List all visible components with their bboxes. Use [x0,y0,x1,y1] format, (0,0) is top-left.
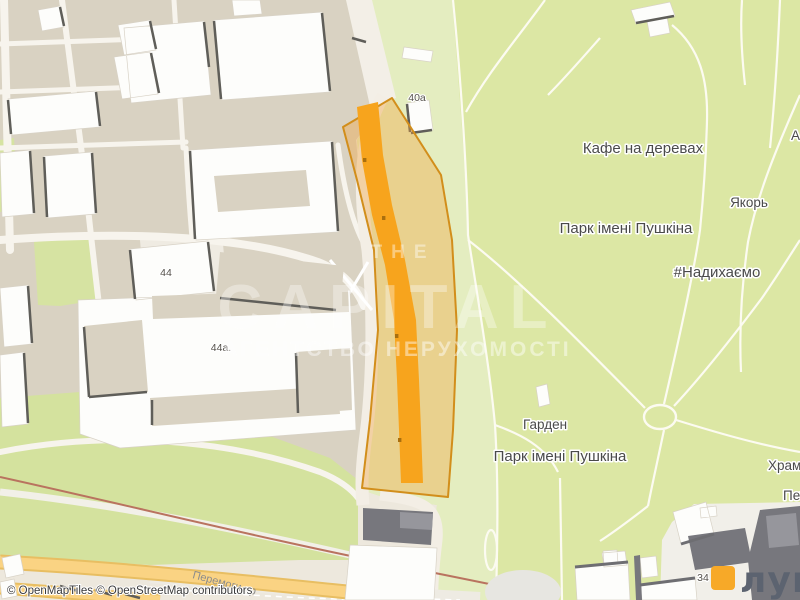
watermark-capital: CAPITAL [217,273,558,342]
label-a-cut: А [791,128,800,143]
label-khram: Храм п [768,458,800,473]
label-yakir: Якорь [730,195,768,210]
label-park-south: Парк імені Пушкіна [494,448,627,465]
label-cafe: Кафе на деревах [583,140,704,157]
label-garden: Гарден [523,417,567,432]
watermark-subtitle: АГЕНТСТВО НЕРУХОМОСТІ [222,338,571,361]
map-viewport[interactable]: Кафе на деревах Парк імені Пушкіна Якорь… [0,0,800,600]
map-canvas[interactable]: Кафе на деревах Парк імені Пушкіна Якорь… [0,0,800,600]
map-attribution[interactable]: © OpenMapTiles © OpenStreetMap contribut… [7,585,253,597]
lun-logo-square [711,566,735,590]
label-park-north: Парк імені Пушкіна [560,220,693,237]
label-house-44: 44 [160,267,172,279]
lun-logo-text: лун [740,560,800,600]
label-pet: Пет [783,488,800,503]
label-house-40a: 40а [408,92,426,104]
label-hashtag: #Надихаємо [674,264,761,281]
watermark-the: THE [371,242,436,263]
label-house-34: 34 [697,572,709,584]
